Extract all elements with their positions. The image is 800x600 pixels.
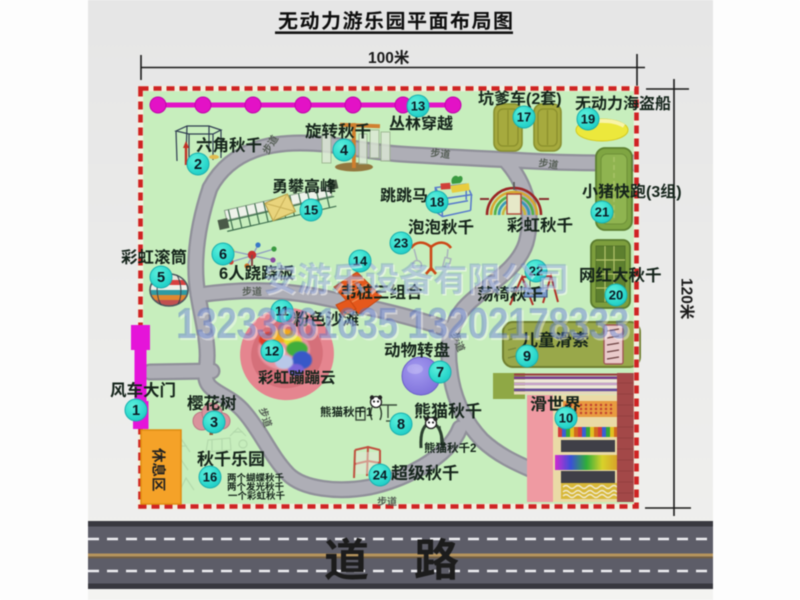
svg-text:2: 2 [470, 443, 476, 455]
svg-text:19: 19 [581, 112, 595, 127]
svg-text:6: 6 [219, 265, 228, 283]
svg-text:24: 24 [373, 468, 388, 483]
svg-text:10: 10 [559, 411, 573, 426]
svg-text:15: 15 [304, 203, 318, 218]
svg-text:120: 120 [678, 278, 695, 304]
svg-text:5: 5 [157, 270, 165, 286]
svg-text:9: 9 [523, 349, 531, 365]
svg-text:8: 8 [397, 417, 405, 433]
svg-text:21: 21 [595, 205, 609, 220]
svg-text:100: 100 [368, 50, 394, 67]
svg-text:13: 13 [411, 99, 425, 114]
svg-text:(3: (3 [646, 184, 660, 201]
svg-text:18: 18 [430, 195, 444, 210]
svg-text:1: 1 [132, 403, 140, 419]
svg-text:16: 16 [203, 470, 217, 485]
svg-text:3: 3 [210, 415, 218, 431]
svg-text:(2: (2 [526, 91, 540, 108]
svg-text:17: 17 [517, 110, 531, 125]
svg-text:6: 6 [219, 247, 227, 263]
svg-text:2: 2 [194, 157, 202, 173]
svg-text:13233861635 13202178333: 13233861635 13202178333 [176, 298, 629, 348]
svg-text:1: 1 [366, 407, 373, 419]
svg-text:): ) [676, 184, 681, 201]
svg-text:23: 23 [394, 236, 408, 251]
svg-text:4: 4 [340, 143, 348, 159]
svg-text:): ) [556, 91, 561, 108]
svg-text:7: 7 [436, 365, 444, 381]
